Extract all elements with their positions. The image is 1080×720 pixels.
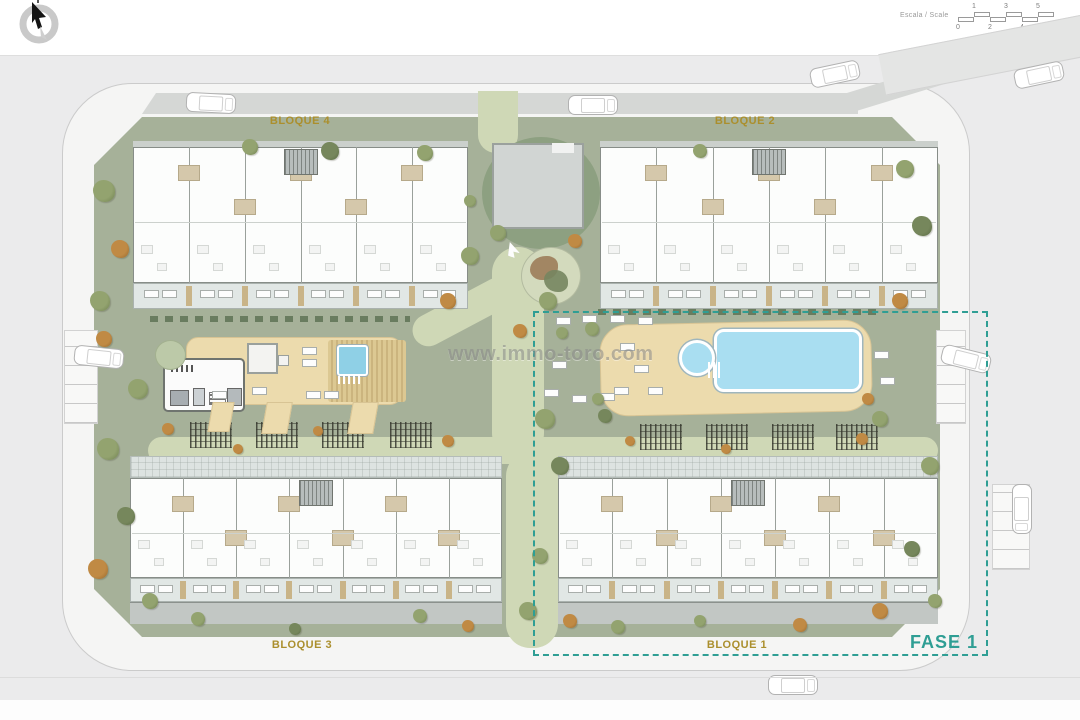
terrace-divider [242, 286, 248, 306]
furniture-mark [420, 245, 432, 254]
bathroom-zone [178, 165, 200, 181]
terrace-lounger [837, 290, 852, 298]
furniture-mark [297, 540, 309, 549]
terrace-lounger [311, 290, 326, 298]
terrace-lounger [370, 585, 385, 593]
sun-lounger [306, 391, 321, 399]
block-corridor-line [132, 533, 500, 534]
furniture-mark [364, 245, 376, 254]
tree-icon [693, 144, 707, 158]
block-label-bloque1: BLOQUE 1 [667, 639, 807, 651]
spa-steps [338, 376, 363, 384]
bathroom-zone [814, 199, 836, 215]
block-bloque2 [600, 141, 938, 309]
furniture-mark [664, 245, 676, 254]
terrace-divider [340, 581, 346, 599]
watermark: www.immo-toro.com [448, 343, 654, 366]
sun-lounger [302, 359, 317, 367]
tree-icon [490, 225, 506, 241]
furniture-mark [141, 245, 153, 254]
scale-segment [1022, 17, 1038, 22]
tree-icon [128, 379, 148, 399]
terrace-divider [286, 581, 292, 599]
furniture-mark [309, 245, 321, 254]
terrace-lounger [686, 290, 701, 298]
terrace-lounger [911, 290, 926, 298]
furniture-mark [325, 263, 335, 271]
tree-icon [462, 620, 474, 632]
scale-segment [958, 17, 974, 22]
terrace-lounger [780, 290, 795, 298]
scale-tick: 3 [1001, 3, 1011, 10]
kiosk-structure [247, 343, 278, 374]
compass-north-icon [12, 0, 66, 52]
stair-core [284, 149, 318, 175]
gym-equipment [193, 388, 205, 406]
bathroom-zone [871, 165, 893, 181]
apartment-divider [343, 478, 344, 578]
stair-core [752, 149, 786, 175]
scale-tick: 1 [969, 3, 979, 10]
page-margin [0, 700, 1080, 720]
terrace-lounger [264, 585, 279, 593]
furniture-mark [313, 558, 323, 566]
tree-icon [142, 593, 158, 609]
tree-icon [162, 423, 174, 435]
furniture-mark [777, 245, 789, 254]
furniture-mark [269, 263, 279, 271]
tree-icon [892, 293, 908, 309]
apartment-divider [396, 478, 397, 578]
tree-icon [464, 195, 476, 207]
garden-planting [544, 270, 568, 292]
tree-icon [313, 426, 323, 436]
tree-icon [461, 247, 479, 265]
bathroom-zone [234, 199, 256, 215]
bathroom-zone [702, 199, 724, 215]
block-walkway [130, 602, 502, 624]
scale-segment [974, 12, 990, 17]
terrace-lounger [458, 585, 473, 593]
furniture-mark [436, 263, 446, 271]
terrace-divider [446, 581, 452, 599]
plaza-building-notch [552, 143, 574, 153]
terrace-lounger [193, 585, 208, 593]
terrace-lounger [162, 290, 177, 298]
car-icon [1012, 484, 1032, 534]
scale-tick: 0 [953, 24, 963, 31]
furniture-mark [207, 558, 217, 566]
tree-icon [97, 438, 119, 460]
apartment-divider [245, 147, 246, 283]
tree-icon [88, 559, 108, 579]
terrace-lounger [329, 290, 344, 298]
block-label-bloque2: BLOQUE 2 [675, 115, 815, 127]
apartment-divider [825, 147, 826, 283]
furniture-mark [213, 263, 223, 271]
pergola-carport [390, 422, 432, 448]
terrace-lounger [200, 290, 215, 298]
block-terrace-tiles [130, 456, 502, 478]
terrace-divider [710, 286, 716, 306]
furniture-mark [138, 540, 150, 549]
furniture-mark [793, 263, 803, 271]
furniture-mark [737, 263, 747, 271]
site-plan-page: Escala / Scale 1 3 5 0 2 4 6 [0, 0, 1080, 720]
bathroom-zone [345, 199, 367, 215]
terrace-lounger [724, 290, 739, 298]
lawn-circle [155, 340, 186, 370]
terrace-divider [879, 286, 885, 306]
terrace-lounger [256, 290, 271, 298]
terrace-lounger [798, 290, 813, 298]
terrace-divider [233, 581, 239, 599]
tree-icon [242, 139, 258, 155]
spa-pool [337, 345, 368, 376]
tree-icon [912, 216, 932, 236]
scale-tick: 2 [985, 24, 995, 31]
furniture-mark [473, 558, 483, 566]
terrace-divider [298, 286, 304, 306]
terrace-lounger [158, 585, 173, 593]
furniture-mark [849, 263, 859, 271]
apartment-divider [236, 478, 237, 578]
tree-icon [321, 142, 339, 160]
car-icon [768, 675, 818, 695]
furniture-mark [457, 540, 469, 549]
sun-lounger [252, 387, 267, 395]
apartment-divider [713, 147, 714, 283]
terrace-divider [353, 286, 359, 306]
block-corridor-line [135, 222, 466, 223]
furniture-mark [157, 263, 167, 271]
furniture-mark [680, 263, 690, 271]
bathroom-zone [172, 496, 194, 512]
furniture-mark [253, 245, 265, 254]
terrace-lounger [742, 290, 757, 298]
sun-lounger [212, 391, 227, 399]
terrace-lounger [218, 290, 233, 298]
tree-icon [568, 234, 582, 248]
terrace-lounger [423, 585, 438, 593]
tree-icon [417, 145, 433, 161]
terrace-divider [822, 286, 828, 306]
terrace-lounger [367, 290, 382, 298]
car-icon [186, 92, 237, 115]
furniture-mark [906, 263, 916, 271]
tree-icon [513, 324, 527, 338]
scale-segment [1006, 12, 1022, 17]
road-edge-line [0, 677, 1080, 678]
terrace-lounger [211, 585, 226, 593]
tree-icon [896, 160, 914, 178]
sun-lounger [324, 391, 339, 399]
terrace-lounger [629, 290, 644, 298]
scale-segment [990, 17, 1006, 22]
terrace-lounger [317, 585, 332, 593]
plan-canvas: FASE 1 BLOQUE 4 BLOQUE 2 BLOQUE 3 BLOQUE… [0, 55, 1080, 701]
terrace-divider [180, 581, 186, 599]
tree-icon [413, 609, 427, 623]
apartment-divider [183, 478, 184, 578]
furniture-mark [721, 245, 733, 254]
furniture-mark [260, 558, 270, 566]
terrace-lounger [423, 290, 438, 298]
tree-icon [93, 180, 115, 202]
terrace-divider [186, 286, 192, 306]
bathroom-zone [645, 165, 667, 181]
furniture-mark [890, 245, 902, 254]
furniture-mark [420, 558, 430, 566]
terrace-lounger [405, 585, 420, 593]
terrace-divider [393, 581, 399, 599]
gym-equipment [170, 390, 189, 406]
plaza-building [492, 143, 584, 229]
terrace-divider [409, 286, 415, 306]
terrace-lounger [611, 290, 626, 298]
terrace-lounger [299, 585, 314, 593]
tree-icon [191, 612, 205, 626]
apartment-divider [449, 478, 450, 578]
apartment-divider [289, 478, 290, 578]
terrace-divider [653, 286, 659, 306]
scale-label: Escala / Scale [900, 12, 949, 19]
furniture-mark [244, 540, 256, 549]
block-bloque3 [130, 456, 502, 624]
furniture-mark [191, 540, 203, 549]
scale-segment [1038, 12, 1054, 17]
terrace-lounger [668, 290, 683, 298]
kiosk-entry [278, 355, 289, 366]
tree-icon [440, 293, 456, 309]
tree-icon [90, 291, 110, 311]
terrace-lounger [140, 585, 155, 593]
furniture-mark [197, 245, 209, 254]
terrace-lounger [855, 290, 870, 298]
tree-icon [96, 331, 112, 347]
terrace-lounger [352, 585, 367, 593]
terrace-lounger [476, 585, 491, 593]
sun-lounger [302, 347, 317, 355]
scale-tick: 5 [1033, 3, 1043, 10]
furniture-mark [380, 263, 390, 271]
furniture-mark [351, 540, 363, 549]
tree-icon [289, 623, 301, 635]
terrace-lounger [246, 585, 261, 593]
tree-icon [111, 240, 129, 258]
stair-core [299, 480, 333, 506]
fase1-label: FASE 1 [910, 632, 978, 653]
furniture-mark [833, 245, 845, 254]
furniture-mark [367, 558, 377, 566]
tree-icon [539, 292, 557, 310]
car-icon [568, 95, 618, 115]
bathroom-zone [385, 496, 407, 512]
apartment-divider [356, 147, 357, 283]
bathroom-zone [278, 496, 300, 512]
hedge-row [150, 316, 410, 322]
terrace-lounger [144, 290, 159, 298]
bathroom-zone [401, 165, 423, 181]
tree-icon [442, 435, 454, 447]
tree-icon [117, 507, 135, 525]
furniture-mark [154, 558, 164, 566]
block-bloque4 [133, 141, 468, 309]
furniture-mark [404, 540, 416, 549]
terrace-divider [766, 286, 772, 306]
block-corridor-line [602, 222, 936, 223]
furniture-mark [624, 263, 634, 271]
furniture-mark [608, 245, 620, 254]
block-label-bloque3: BLOQUE 3 [232, 639, 372, 651]
terrace-lounger [274, 290, 289, 298]
block-label-bloque4: BLOQUE 4 [230, 115, 370, 127]
tree-icon [233, 444, 243, 454]
terrace-lounger [385, 290, 400, 298]
